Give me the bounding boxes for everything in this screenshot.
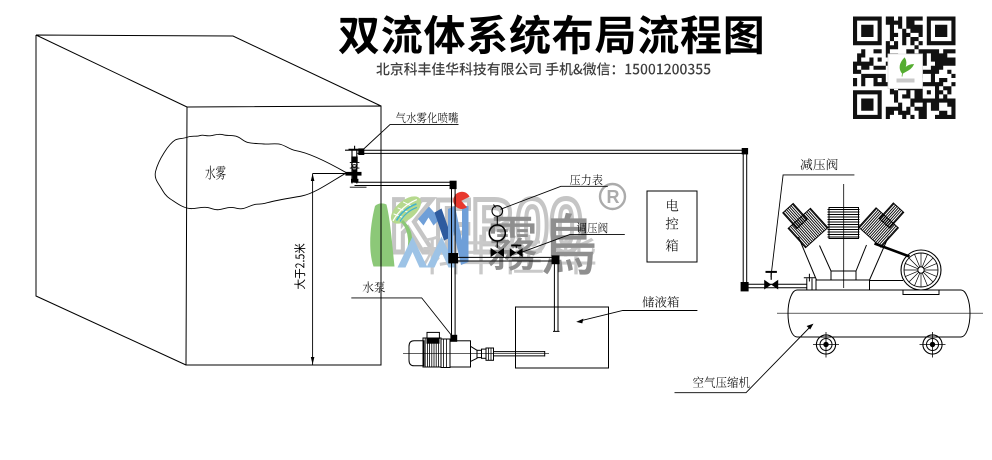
svg-text:R: R [607,187,620,207]
